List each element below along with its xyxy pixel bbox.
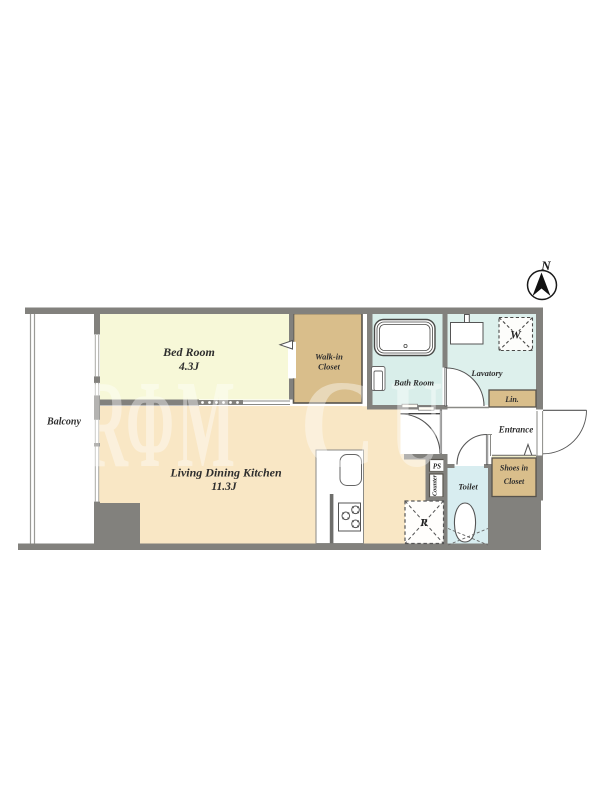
svg-text:Φ: Φ xyxy=(126,356,174,494)
svg-text:W: W xyxy=(510,328,522,342)
svg-text:N: N xyxy=(540,258,551,273)
svg-text:R: R xyxy=(84,356,129,494)
svg-text:Lin.: Lin. xyxy=(504,395,519,404)
svg-text:11.3J: 11.3J xyxy=(211,481,237,493)
svg-text:R: R xyxy=(419,517,427,529)
svg-text:Walk-in: Walk-in xyxy=(315,352,343,362)
svg-text:Lavatory: Lavatory xyxy=(470,368,502,378)
svg-text:4.3J: 4.3J xyxy=(178,361,200,373)
svg-text:Bed Room: Bed Room xyxy=(162,345,215,359)
svg-text:Bath Room: Bath Room xyxy=(393,378,434,388)
svg-text:Entrance: Entrance xyxy=(498,425,534,435)
svg-text:Living Dining Kitchen: Living Dining Kitchen xyxy=(169,466,282,480)
svg-text:Closet: Closet xyxy=(504,477,525,486)
svg-text:Toilet: Toilet xyxy=(458,482,478,492)
svg-text:Closet: Closet xyxy=(318,362,340,372)
svg-text:Balcony: Balcony xyxy=(46,417,81,428)
svg-text:Shoes in: Shoes in xyxy=(500,464,529,473)
svg-text:C: C xyxy=(300,356,376,494)
